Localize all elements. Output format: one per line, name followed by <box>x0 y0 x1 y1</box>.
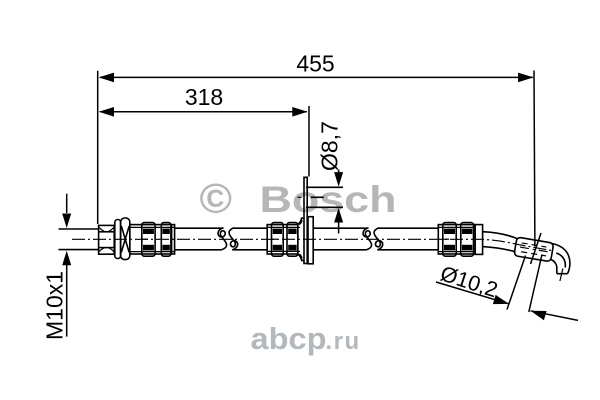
svg-text:©: © <box>200 175 233 222</box>
svg-text:abcp: abcp <box>251 321 327 356</box>
svg-text:M10x1: M10x1 <box>42 271 68 340</box>
svg-text:318: 318 <box>185 84 223 110</box>
svg-text:455: 455 <box>296 51 334 77</box>
svg-text:Ø8,7: Ø8,7 <box>317 121 343 171</box>
svg-text:Bosch: Bosch <box>260 179 397 220</box>
svg-text:.ru: .ru <box>326 328 361 355</box>
